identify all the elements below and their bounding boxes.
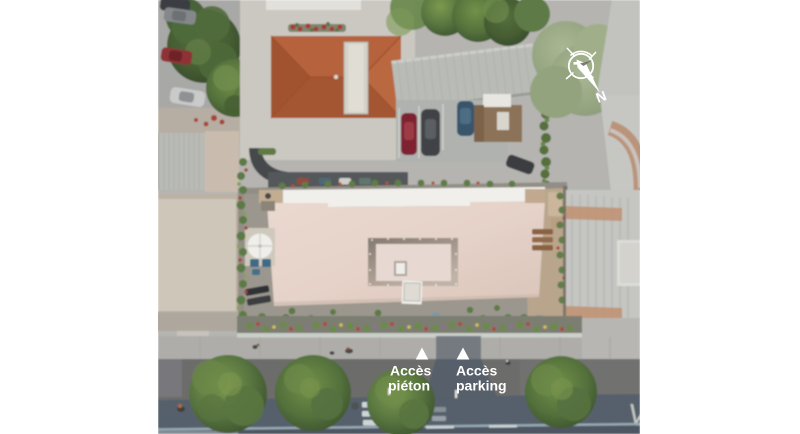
svg-text:piéton: piéton bbox=[388, 378, 430, 394]
svg-text:Accès: Accès bbox=[456, 363, 497, 379]
svg-text:parking: parking bbox=[456, 378, 507, 394]
svg-text:Accès: Accès bbox=[390, 363, 431, 379]
